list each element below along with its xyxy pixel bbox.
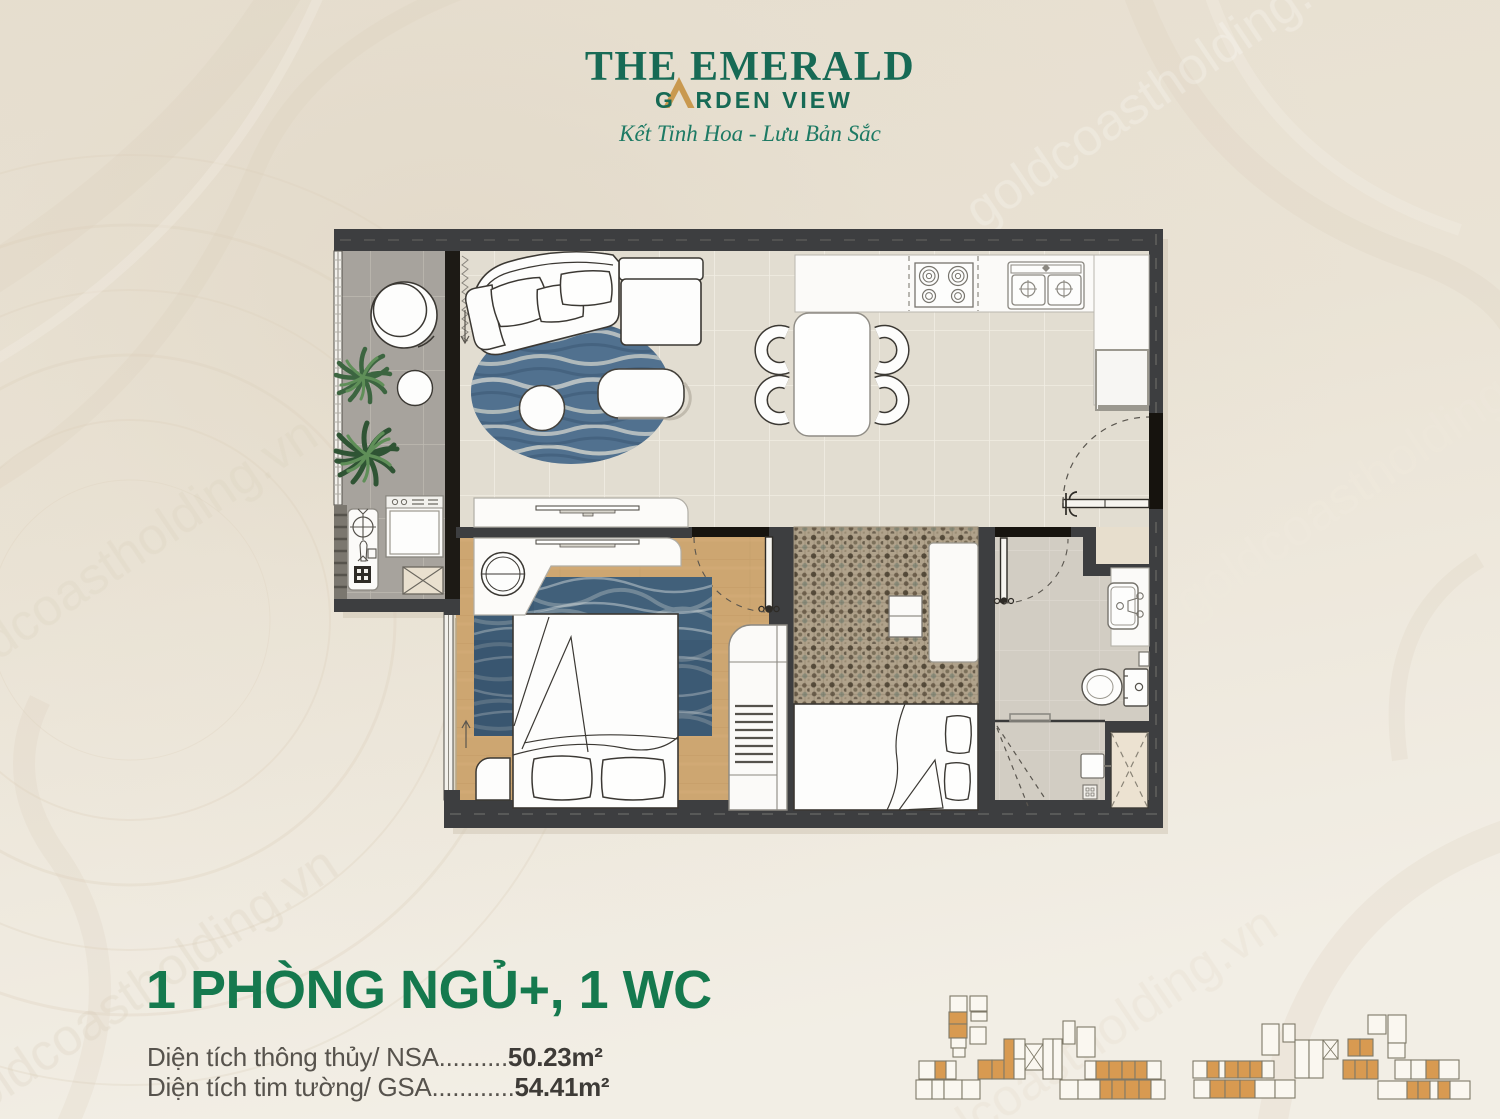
svg-text:THE EMERALD: THE EMERALD bbox=[585, 44, 915, 90]
svg-text:1 PHÒNG NGỦ+, 1 WC: 1 PHÒNG NGỦ+, 1 WC bbox=[146, 960, 712, 1020]
svg-text:Diện tích tim tường/ GSA......: Diện tích tim tường/ GSA............54.4… bbox=[147, 1072, 610, 1102]
svg-text:GARDEN VIEW: GARDEN VIEW bbox=[655, 87, 853, 113]
svg-text:Diện tích thông thủy/ NSA.....: Diện tích thông thủy/ NSA..........50.23… bbox=[147, 1042, 603, 1072]
svg-text:Kết Tinh Hoa - Lưu Bản Sắc: Kết Tinh Hoa - Lưu Bản Sắc bbox=[618, 121, 881, 146]
